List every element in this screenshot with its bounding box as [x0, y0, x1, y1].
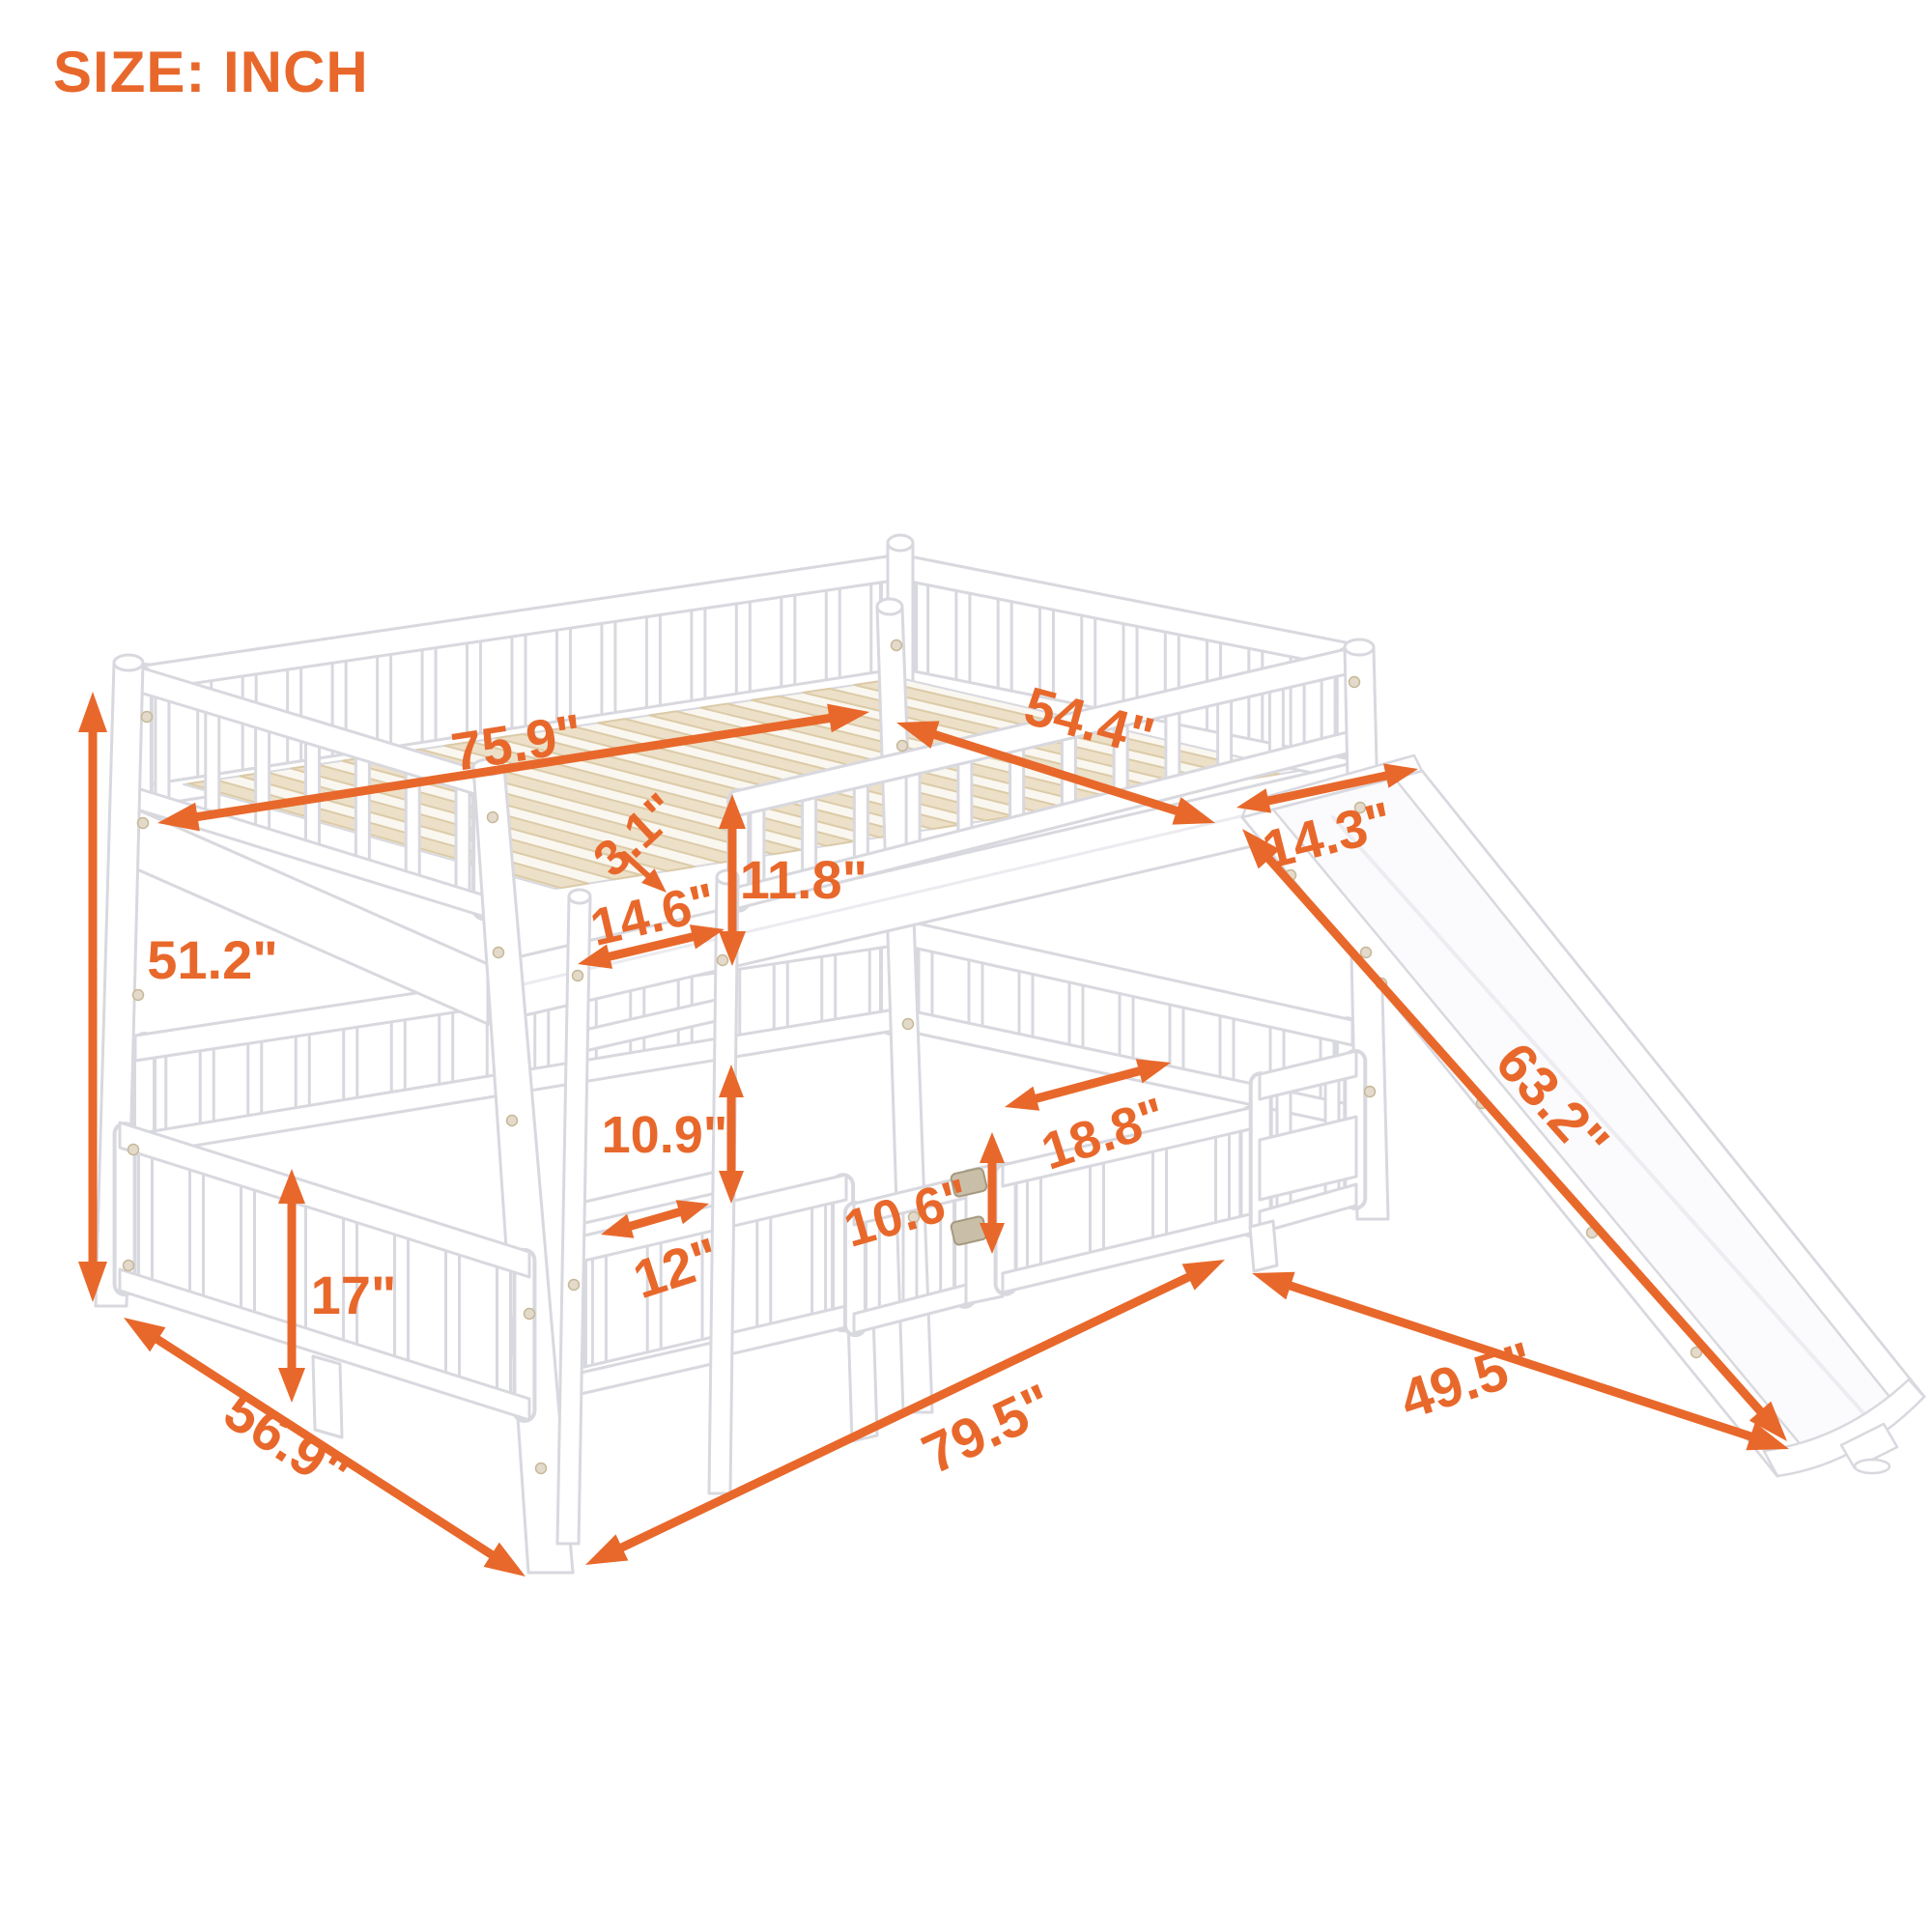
dim-label-total-height: 51.2"	[147, 929, 278, 990]
screw	[718, 955, 728, 966]
screw	[903, 1019, 914, 1030]
post-cap	[877, 599, 902, 614]
bunk-bed-dimension-diagram: 75.9" 54.4" 3.1" 11.8" 14.6" 14.3" 51.2"…	[0, 0, 1932, 1932]
screw	[142, 712, 153, 723]
post-cap	[1345, 639, 1374, 655]
screw	[525, 1309, 535, 1320]
screw	[1365, 1087, 1376, 1097]
screw	[128, 1145, 139, 1155]
slide-foot-pad	[1855, 1460, 1889, 1473]
screw	[1350, 677, 1360, 688]
gate-right-foot	[1250, 1221, 1277, 1271]
post-cap	[888, 535, 913, 551]
screw	[138, 818, 149, 829]
arrow-head	[1182, 1260, 1225, 1291]
arrow-head	[980, 1132, 1005, 1163]
screw	[892, 640, 902, 651]
arrow-head	[1005, 1087, 1039, 1111]
diagram-stage: SIZE: INCH 75.9" 54.4" 3.1" 11.8" 14.6" …	[0, 0, 1932, 1932]
screw	[573, 971, 583, 981]
arrow-head	[484, 1543, 526, 1577]
screw	[488, 812, 498, 823]
post-cap	[114, 655, 143, 670]
screw	[494, 948, 504, 958]
arrow-head	[585, 1534, 628, 1565]
screw	[569, 1280, 580, 1291]
dim-label-total-length: 79.5"	[913, 1372, 1063, 1486]
screw	[897, 741, 908, 752]
dim-label-lower-guardrail-height: 17"	[311, 1264, 397, 1325]
arrow-head	[124, 1318, 165, 1351]
screw	[133, 990, 144, 1001]
arrow-head	[78, 692, 107, 732]
arrow-head	[278, 1368, 305, 1403]
screw	[507, 1116, 518, 1126]
dim-label-ladder-step-spacing: 10.9"	[602, 1106, 728, 1164]
screw	[124, 1261, 134, 1271]
arrow-head	[1252, 1272, 1295, 1300]
screw	[536, 1463, 547, 1474]
fence-top-rail	[120, 1122, 529, 1277]
dim-label-upper-guardrail-height: 11.8"	[740, 849, 867, 910]
screw	[1361, 948, 1372, 958]
